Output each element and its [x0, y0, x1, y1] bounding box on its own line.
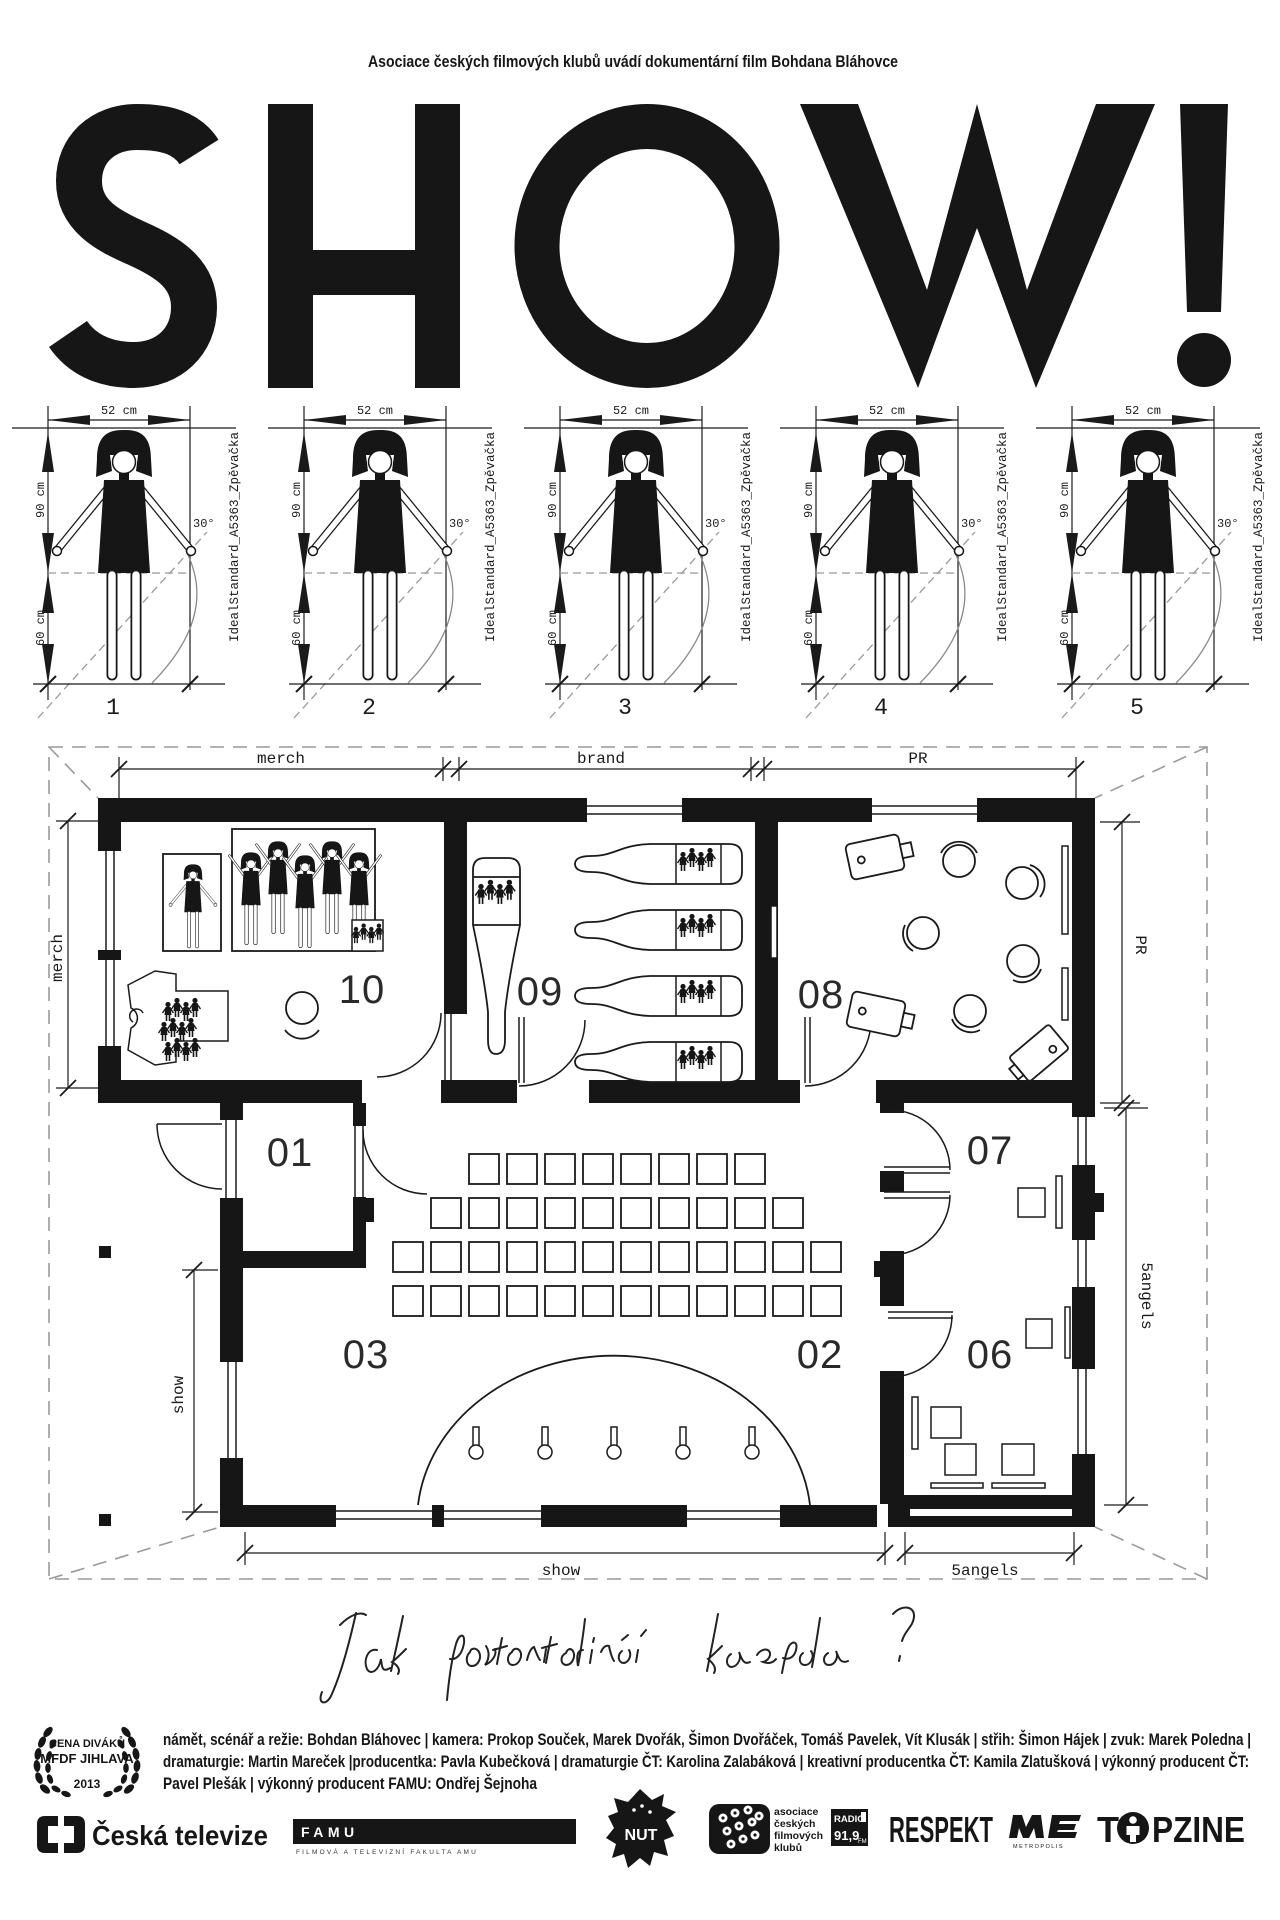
svg-text:09: 09: [517, 970, 564, 1014]
svg-text:brand: brand: [577, 750, 625, 768]
svg-text:Česká televize: Česká televize: [92, 1819, 268, 1851]
svg-text:01: 01: [267, 1131, 314, 1175]
svg-text:2: 2: [362, 695, 376, 721]
svg-text:námět, scénář a režie: Bohdan: námět, scénář a režie: Bohdan Bláhovec |…: [163, 1730, 1251, 1749]
svg-text:PR: PR: [908, 750, 928, 768]
svg-text:dramaturgie: Martin Mareček |p: dramaturgie: Martin Mareček |producentka…: [163, 1752, 1249, 1771]
svg-text:2013: 2013: [74, 1777, 101, 1791]
svg-text:3: 3: [618, 695, 632, 721]
svg-text:RADIO: RADIO: [834, 1814, 865, 1825]
svg-text:FAMU: FAMU: [301, 1824, 359, 1840]
svg-text:02: 02: [797, 1333, 844, 1377]
svg-text:RESPEKT: RESPEKT: [889, 1809, 993, 1850]
svg-text:4: 4: [874, 695, 888, 721]
svg-text:show: show: [170, 1375, 188, 1414]
svg-text:5angels: 5angels: [1137, 1262, 1155, 1329]
svg-text:asociace: asociace: [774, 1806, 819, 1818]
svg-text:show: show: [542, 1562, 581, 1580]
svg-text:91,9: 91,9: [834, 1828, 859, 1843]
svg-text:MFDF JIHLAVA: MFDF JIHLAVA: [40, 1751, 134, 1766]
svg-text:PZINE: PZINE: [1152, 1809, 1245, 1850]
svg-text:5angels: 5angels: [951, 1562, 1018, 1580]
svg-text:FILMOVÁ A TELEVIZNÍ FAKULTA AM: FILMOVÁ A TELEVIZNÍ FAKULTA AMU: [296, 1847, 478, 1856]
svg-text:CENA DIVÁKŮ: CENA DIVÁKŮ: [49, 1736, 125, 1750]
svg-text:10: 10: [339, 968, 386, 1012]
svg-text:T: T: [1097, 1809, 1119, 1850]
svg-text:merch: merch: [257, 750, 305, 768]
svg-text:filmových: filmových: [774, 1830, 823, 1842]
svg-text:METROPOLIS: METROPOLIS: [1013, 1844, 1064, 1850]
svg-text:Pavel Plešák | výkonný produce: Pavel Plešák | výkonný producent FAMU: O…: [163, 1774, 537, 1793]
svg-text:Asociace českých filmových klu: Asociace českých filmových klubů uvádí d…: [368, 52, 898, 71]
svg-text:1: 1: [106, 695, 120, 721]
svg-text:PR: PR: [1131, 935, 1149, 955]
svg-text:NUT: NUT: [625, 1827, 658, 1844]
svg-text:merch: merch: [49, 934, 67, 982]
svg-text:07: 07: [967, 1129, 1014, 1173]
svg-text:5: 5: [1130, 695, 1144, 721]
svg-text:FM: FM: [858, 1839, 867, 1845]
svg-text:06: 06: [967, 1333, 1014, 1377]
svg-text:českých: českých: [774, 1818, 815, 1830]
svg-text:08: 08: [798, 973, 845, 1017]
svg-text:klubů: klubů: [774, 1842, 802, 1854]
svg-text:03: 03: [343, 1333, 390, 1377]
